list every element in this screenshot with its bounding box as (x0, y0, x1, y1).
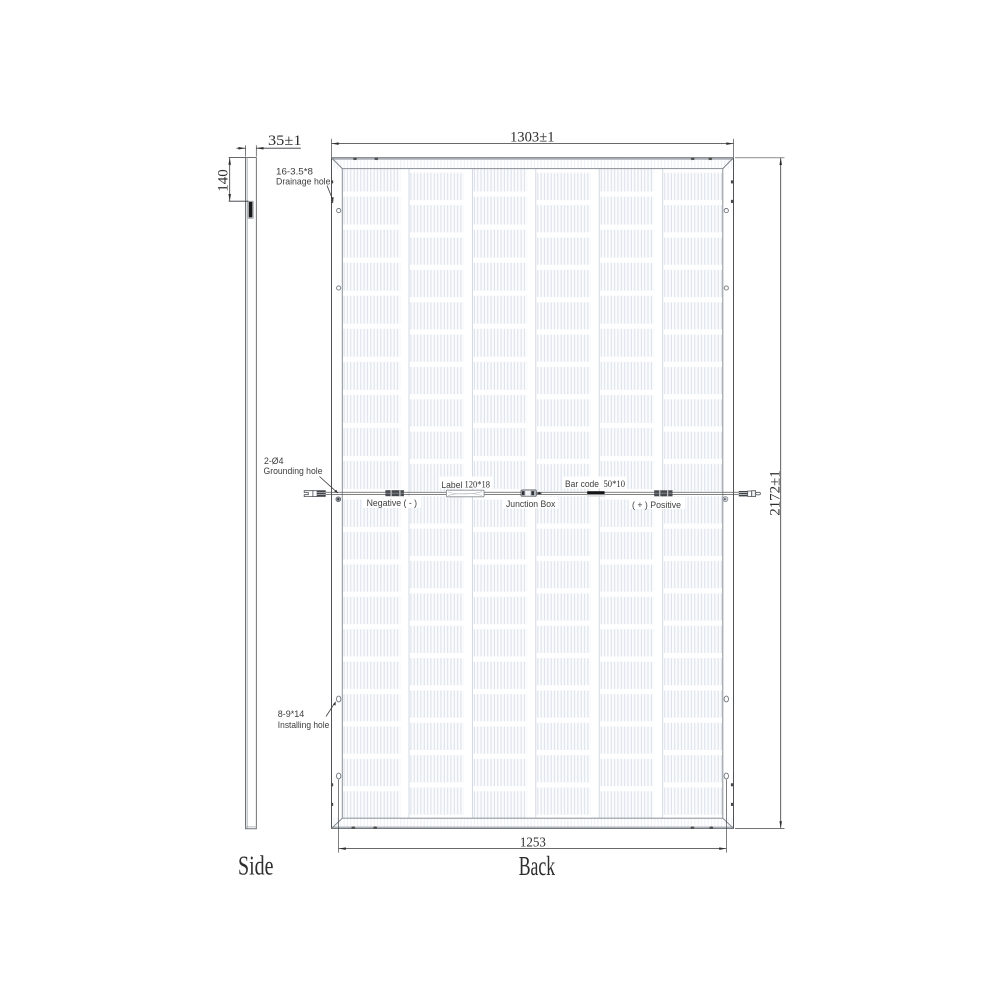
svg-text:Side: Side (238, 851, 274, 881)
svg-text:( + ) Positive: ( + ) Positive (632, 500, 681, 511)
svg-text:Installing hole: Installing hole (278, 720, 330, 730)
svg-text:Label: Label (441, 480, 462, 491)
svg-text:Grounding hole: Grounding hole (264, 466, 323, 476)
svg-text:120*18: 120*18 (465, 481, 491, 491)
svg-text:1253: 1253 (520, 836, 546, 851)
svg-text:140: 140 (216, 169, 232, 192)
svg-text:Back: Back (519, 851, 556, 881)
svg-text:Bar code: Bar code (565, 479, 599, 490)
svg-text:50*10: 50*10 (604, 480, 626, 490)
svg-text:Junction Box: Junction Box (506, 499, 555, 510)
svg-text:35±1: 35±1 (268, 133, 302, 149)
svg-text:Negative ( - ): Negative ( - ) (367, 498, 418, 509)
svg-text:8-9*14: 8-9*14 (278, 709, 305, 719)
svg-text:2-Ø4: 2-Ø4 (264, 456, 284, 466)
svg-text:1303±1: 1303±1 (510, 129, 555, 145)
svg-text:16-3.5*8: 16-3.5*8 (276, 167, 313, 177)
svg-text:Drainage hole: Drainage hole (276, 176, 331, 186)
svg-text:2172±1: 2172±1 (767, 470, 783, 516)
